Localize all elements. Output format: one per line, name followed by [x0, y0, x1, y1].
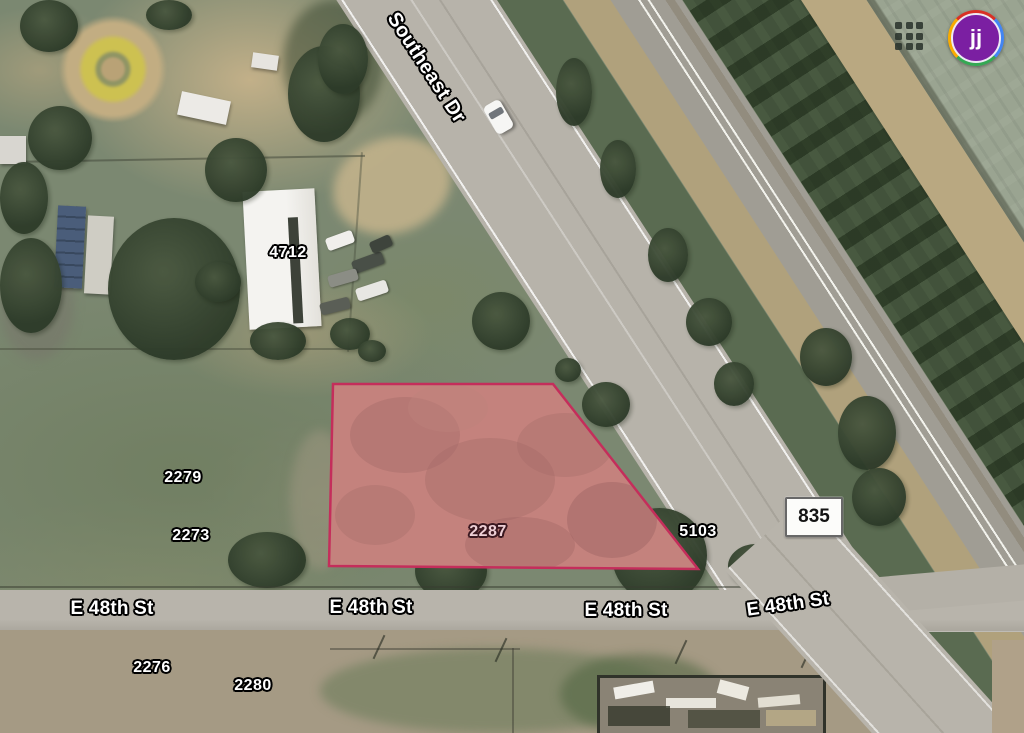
- avatar-initials: jj: [951, 13, 1001, 63]
- parcel-label: 4712: [269, 244, 307, 262]
- route-shield-number: 835: [798, 506, 830, 528]
- apps-grid-dot: [916, 22, 923, 29]
- street-label: E 48th St: [584, 600, 667, 622]
- parcel-highlight-overlay[interactable]: [0, 0, 1024, 733]
- parcel-label: 2280: [234, 677, 272, 695]
- apps-grid-icon[interactable]: [895, 22, 923, 50]
- parcel-label: 2273: [172, 527, 210, 545]
- parcel-label: 2276: [133, 659, 171, 677]
- apps-grid-dot: [895, 43, 902, 50]
- apps-grid-dot: [895, 22, 902, 29]
- apps-grid-dot: [916, 33, 923, 40]
- satellite-map-canvas[interactable]: Southeast DrE 48th StE 48th StE 48th StE…: [0, 0, 1024, 733]
- street-label: E 48th St: [329, 597, 412, 619]
- street-label: E 48th St: [70, 598, 153, 620]
- account-avatar[interactable]: jj: [948, 10, 1004, 66]
- parcel-label: 2279: [164, 469, 202, 487]
- route-835-shield: 835: [785, 497, 843, 537]
- apps-grid-dot: [906, 22, 913, 29]
- parcel-highlight-fill: [329, 384, 698, 569]
- apps-grid-dot: [916, 43, 923, 50]
- apps-grid-dot: [895, 33, 902, 40]
- apps-grid-dot: [906, 43, 913, 50]
- apps-grid-dot: [906, 33, 913, 40]
- car-windshield: [488, 106, 504, 120]
- highlighted-parcel-label: 2287: [469, 523, 507, 541]
- parcel-label: 5103: [679, 523, 717, 541]
